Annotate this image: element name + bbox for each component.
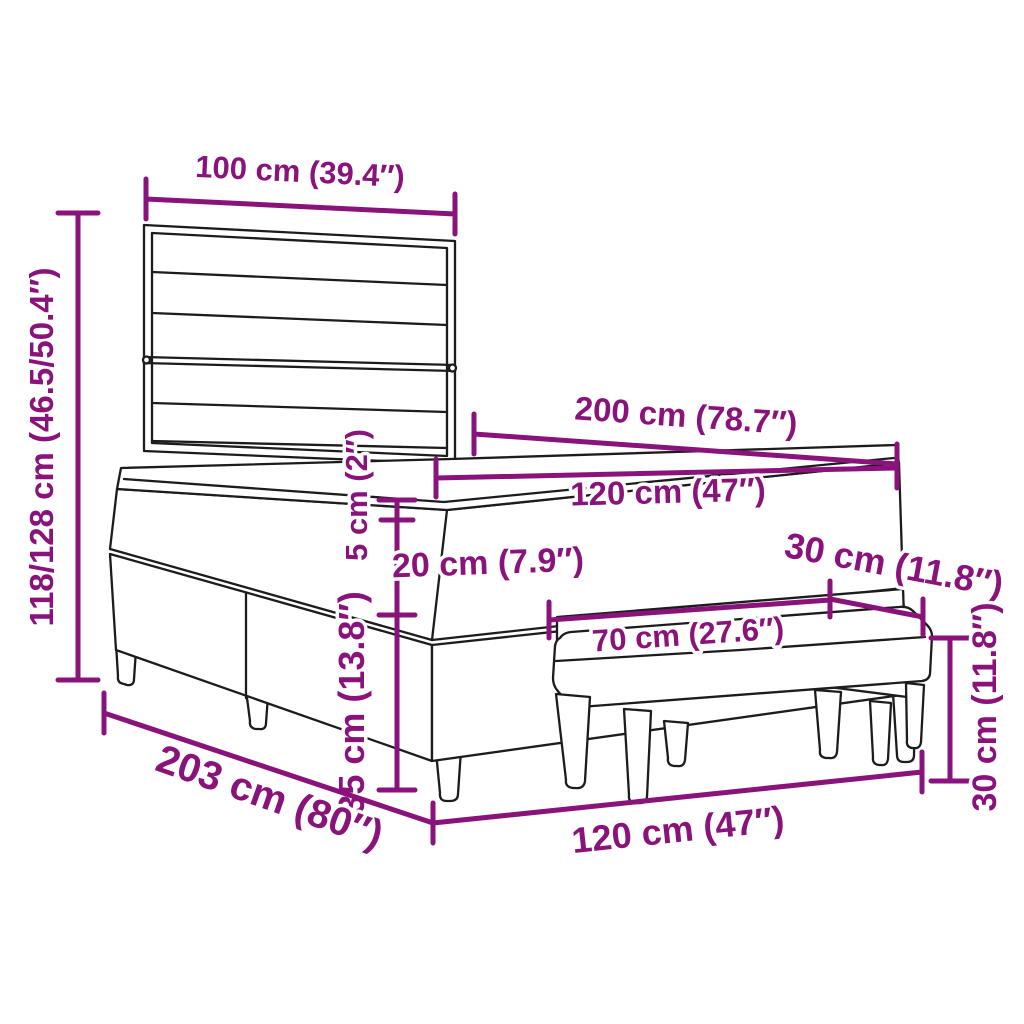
diagram-canvas: 100 cm (39.4″) 118/128 cm (46.5/50.4″) 2… <box>0 0 1024 1024</box>
dim-headboard-width-label: 100 cm (39.4″) <box>194 149 405 194</box>
bed-drawing <box>110 225 915 801</box>
headboard-outline <box>144 225 455 464</box>
dim-base-height-label: 35 cm (13.8″) <box>331 591 372 814</box>
bench-leg <box>906 683 924 748</box>
dim-bench-height: 30 cm (11.8″) <box>931 602 1004 811</box>
headboard-rail-knob <box>143 357 150 364</box>
dim-overall-height-label: 118/128 cm (46.5/50.4″) <box>23 268 60 627</box>
dim-mattress-width-label: 120 cm (47″) <box>570 470 766 512</box>
bench-leg <box>870 701 891 765</box>
dim-mattress-thickness-label: 20 cm (7.9″) <box>391 541 584 586</box>
bench-leg <box>556 694 590 788</box>
bench-leg <box>815 690 841 758</box>
dim-overall-height: 118/128 cm (46.5/50.4″) <box>23 213 98 680</box>
dim-bench-height-label: 30 cm (11.8″) <box>966 602 1004 811</box>
dim-line <box>931 638 969 781</box>
bench-leg <box>624 709 651 803</box>
dim-topper-thickness-label: 5 cm (2″) <box>339 429 374 561</box>
headboard-rail-knob <box>449 365 456 372</box>
bench-leg <box>664 721 688 766</box>
dim-bed-width: 120 cm (47″) <box>433 752 922 861</box>
dim-headboard-width: 100 cm (39.4″) <box>146 149 455 234</box>
furniture-dimension-diagram: 100 cm (39.4″) 118/128 cm (46.5/50.4″) 2… <box>0 0 1024 1024</box>
dim-line <box>58 213 98 680</box>
dim-bed-length-label: 200 cm (78.7″) <box>574 389 799 441</box>
